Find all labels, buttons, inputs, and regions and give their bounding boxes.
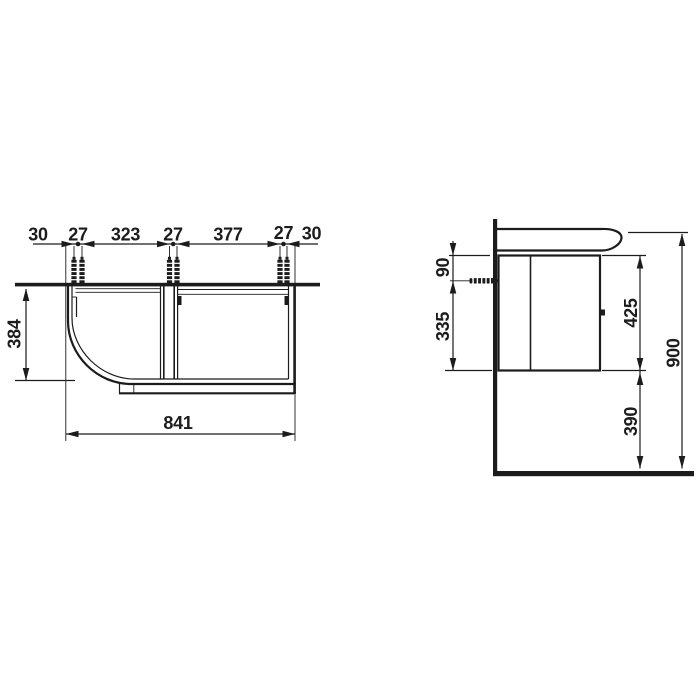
dim-label-cabinet-height: 425 <box>621 298 641 327</box>
dim-label-anchor-bottom-span: 335 <box>433 312 453 341</box>
wall <box>493 219 497 476</box>
hinge-fitting <box>178 296 182 305</box>
wall-anchor-icon <box>79 246 84 283</box>
side-cabinet <box>499 256 606 371</box>
plan-cabinet-outline <box>68 286 296 394</box>
drawing-canvas: 30 27 323 27 377 27 30 <box>0 0 700 700</box>
wall-anchor-icons-plan <box>71 246 289 283</box>
dim-label-total-height: 900 <box>664 338 684 367</box>
side-anchor-dimensions: 90 335 <box>433 241 492 371</box>
vanity-installation-drawing: 30 27 323 27 377 27 30 <box>0 0 700 700</box>
wall-anchor-icon <box>284 246 289 283</box>
wall-anchor-icon-side <box>450 278 499 283</box>
side-cabinet-dimensions: 425 390 <box>602 256 646 469</box>
dim-label-pair-left: 27 <box>68 225 88 245</box>
wall-anchor-icon <box>174 246 179 283</box>
plan-countertop-edge <box>15 283 320 287</box>
dim-label-bottom-clearance: 390 <box>621 407 641 436</box>
dim-label-edge-left: 30 <box>28 225 48 245</box>
plan-width-dimension: 841 <box>66 413 295 437</box>
wall-anchor-icon <box>71 246 76 283</box>
wall-anchor-icon <box>167 246 172 283</box>
dim-label-depth: 384 <box>5 319 25 348</box>
dim-label-span-left: 323 <box>111 225 140 245</box>
plan-view: 30 27 323 27 377 27 30 <box>5 223 322 441</box>
dim-label-span-right: 377 <box>213 225 242 245</box>
dim-label-pair-middle: 27 <box>163 225 183 245</box>
dim-label-edge-right: 30 <box>302 224 322 244</box>
plan-depth-dimension: 384 <box>5 289 76 381</box>
wall-anchor-icon <box>277 246 282 283</box>
side-view: 90 335 425 390 900 <box>433 219 694 476</box>
hinge-fitting <box>285 296 289 305</box>
floor <box>493 471 694 476</box>
dim-label-width: 841 <box>163 413 192 433</box>
dim-label-pair-right: 27 <box>274 223 294 243</box>
washbasin-profile <box>497 229 622 251</box>
dim-label-anchor-top-offset: 90 <box>433 258 453 278</box>
door-handle <box>600 310 606 316</box>
